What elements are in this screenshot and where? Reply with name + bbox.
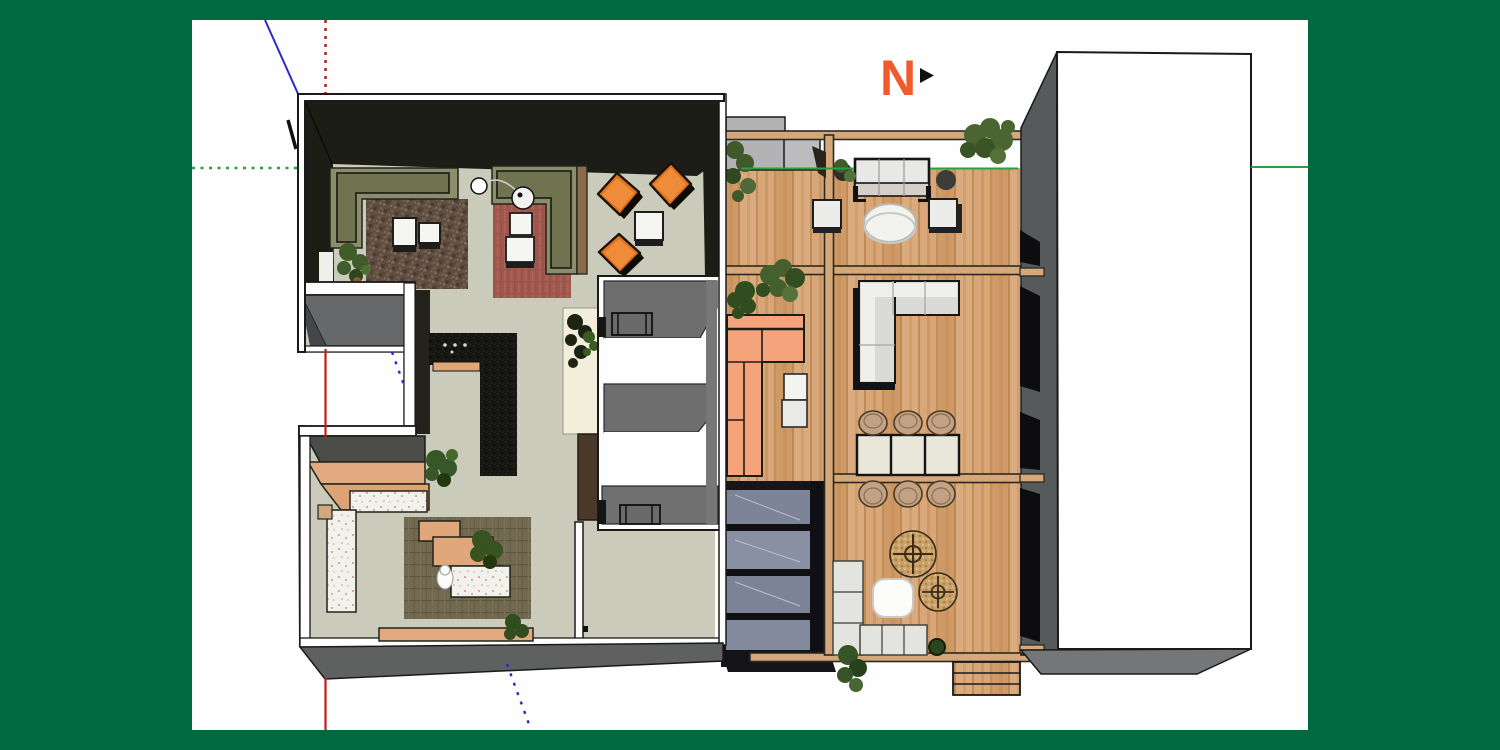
svg-text:N: N — [880, 50, 916, 106]
